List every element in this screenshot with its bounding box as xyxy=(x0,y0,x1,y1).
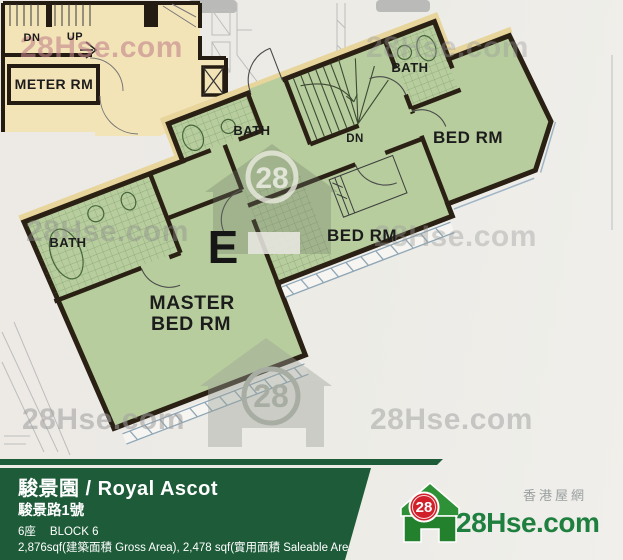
label-dn-common: DN xyxy=(24,32,41,44)
label-up-common: UP xyxy=(67,31,83,43)
watermark-badge: 28 xyxy=(255,162,288,195)
watermark-text: 28Hse.com xyxy=(374,220,537,253)
estate-address: 駿景路1號 xyxy=(18,499,84,520)
label-master-line2: BED RM xyxy=(151,313,231,335)
wall-block xyxy=(144,3,158,27)
floor-plan-drawing: 28 28 28Hse.com 28Hse.com 28Hse.com 28Hs… xyxy=(0,0,623,460)
label-meter-rm: METER RM xyxy=(15,76,94,92)
watermark-text: 28Hse.com xyxy=(20,31,183,64)
brand-tagline: 香港屋網 xyxy=(523,485,587,504)
block-info: 6座BLOCK 6 xyxy=(18,523,98,539)
estate-name: 駿景園 / Royal Ascot xyxy=(18,472,218,501)
watermark-text: 28Hse.com xyxy=(22,403,185,436)
label-dn-unit: DN xyxy=(346,133,364,145)
brand-badge: 28 xyxy=(416,499,433,516)
label-bath-top: BATH xyxy=(391,60,428,75)
block-en: BLOCK 6 xyxy=(50,526,99,538)
footer-accent-strip xyxy=(0,459,443,465)
unit-letter: E xyxy=(208,221,239,273)
brand-site-name: 28Hse.com xyxy=(456,507,599,539)
label-bedrm-mid: BED RM xyxy=(327,226,397,245)
label-master-line1: MASTER xyxy=(149,292,234,314)
stair-divider-wall xyxy=(46,3,52,27)
label-bath-left: BATH xyxy=(49,235,86,250)
lift-shaft xyxy=(203,67,224,95)
block-cn: 6座 xyxy=(18,526,36,538)
watermark-text: 28Hse.com xyxy=(370,403,533,436)
watermark-house-feet xyxy=(188,0,430,13)
label-bath-mid: BATH xyxy=(233,123,270,138)
watermark-badge: 28 xyxy=(253,378,289,414)
brand-house-icon: 28 xyxy=(399,481,461,545)
floorplan-page: 28 28 28Hse.com 28Hse.com 28Hse.com 28Hs… xyxy=(0,0,623,560)
area-info: 2,876sqf(建築面積 Gross Area), 2,478 sqf(實用面… xyxy=(18,539,359,555)
label-bedrm-right: BED RM xyxy=(433,128,503,147)
